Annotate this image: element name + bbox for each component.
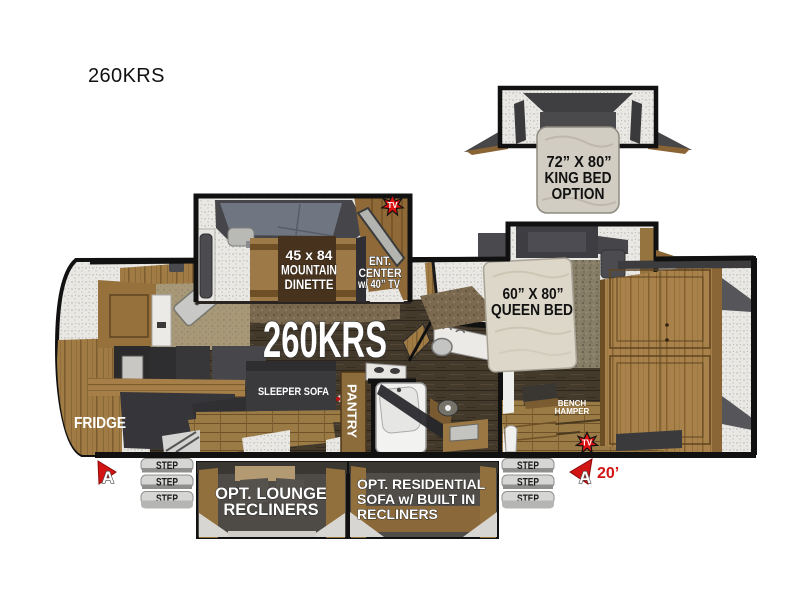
svg-text:TV: TV [387,201,398,210]
svg-text:ENT.: ENT. [369,256,391,268]
svg-text:DINETTE: DINETTE [285,277,334,292]
svg-text:RECLINERS: RECLINERS [357,506,438,522]
svg-text:260KRS: 260KRS [263,311,387,368]
svg-text:HAMPER: HAMPER [555,407,590,416]
svg-text:RECLINERS: RECLINERS [223,501,318,519]
svg-text:FRIDGE: FRIDGE [74,415,126,432]
svg-text:w/ 40” TV: w/ 40” TV [357,279,400,291]
svg-text:A: A [579,468,591,487]
svg-text:QUEEN BED: QUEEN BED [491,302,573,319]
svg-text:STEP: STEP [156,477,178,489]
svg-text:OPT. RESIDENTIAL: OPT. RESIDENTIAL [357,476,486,492]
svg-text:60” X 80”: 60” X 80” [503,286,564,303]
svg-text:STEP: STEP [517,460,539,472]
svg-text:A: A [102,468,114,487]
svg-text:STEP: STEP [517,477,539,489]
svg-text:TV: TV [582,439,593,448]
svg-text:KING BED: KING BED [545,170,612,187]
svg-text:260KRS: 260KRS [88,65,165,87]
svg-text:OPTION: OPTION [552,186,605,203]
svg-text:45 x 84: 45 x 84 [286,248,334,263]
svg-text:MOUNTAIN: MOUNTAIN [281,263,337,278]
svg-text:SLEEPER SOFA: SLEEPER SOFA [258,386,329,398]
svg-text:STEP: STEP [156,460,178,472]
svg-text:20’: 20’ [597,465,619,482]
svg-text:PANTRY: PANTRY [345,384,360,438]
svg-text:72” X 80”: 72” X 80” [547,154,612,171]
svg-text:SOFA w/ BUILT IN: SOFA w/ BUILT IN [357,491,475,507]
